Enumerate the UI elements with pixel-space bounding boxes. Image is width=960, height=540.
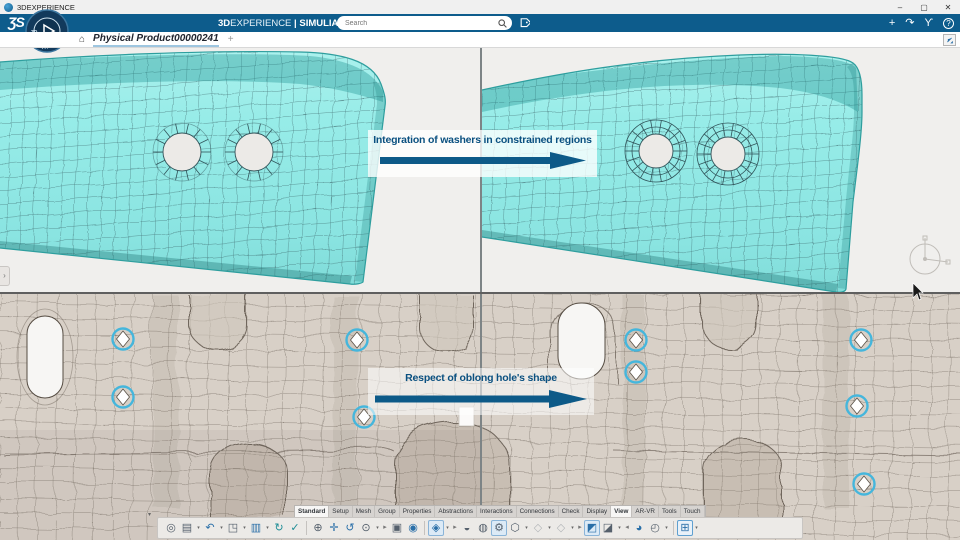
- zoom-in-out-icon[interactable]: ⊕: [310, 520, 326, 536]
- brand-experience: EXPERIENCE: [230, 18, 291, 29]
- zoom-area-icon[interactable]: ◎: [163, 520, 179, 536]
- select-mode-icon[interactable]: ◩: [584, 520, 600, 536]
- ground-context-icon[interactable]: ◍: [475, 520, 491, 536]
- hole-left-1: [163, 133, 201, 171]
- hole-left-2: [235, 133, 273, 171]
- model-viewport[interactable]: [0, 0, 960, 540]
- undo-icon[interactable]: ↶: [202, 520, 218, 536]
- annotation-arrow-top: [380, 152, 586, 169]
- turntable-icon[interactable]: ◴: [647, 520, 663, 536]
- previous-view-icon[interactable]: ◂: [623, 520, 631, 536]
- quad-view-icon[interactable]: ⊞: [677, 520, 693, 536]
- tag-icon[interactable]: [518, 17, 530, 29]
- model-browser-caret[interactable]: ▾: [195, 520, 202, 536]
- horizontal-divider[interactable]: [0, 292, 960, 294]
- annotation-washers: Integration of washers in constrained re…: [368, 130, 597, 177]
- manipulators-caret[interactable]: ▾: [241, 520, 248, 536]
- mechanical-features-icon[interactable]: ⚙: [491, 520, 507, 536]
- maximize-button[interactable]: ▢: [912, 3, 936, 12]
- dassault-3ds-logo-icon[interactable]: ƷS: [8, 14, 24, 30]
- help-icon[interactable]: ?: [943, 18, 954, 29]
- app-globe-icon: [4, 3, 13, 12]
- 3ds-community-icon[interactable]: ϒ: [925, 14, 934, 32]
- search-input[interactable]: [337, 20, 498, 27]
- undo-caret[interactable]: ▾: [218, 520, 225, 536]
- display-option-b-icon[interactable]: ◇: [553, 520, 569, 536]
- annotation-washers-text: Integration of washers in constrained re…: [368, 130, 597, 146]
- zoom-options-caret[interactable]: ▾: [374, 520, 381, 536]
- minimize-button[interactable]: –: [888, 3, 912, 12]
- manipulators-icon[interactable]: ◳: [225, 520, 241, 536]
- document-tab-bar: ⌂ Physical Product00000241 +: [0, 32, 960, 48]
- annotation-oblong: Respect of oblong hole's shape: [368, 368, 594, 415]
- annotation-arrow-bottom: [375, 390, 587, 408]
- panel-expander-icon[interactable]: ›: [0, 266, 10, 286]
- new-tab-button[interactable]: +: [228, 34, 234, 45]
- document-tab[interactable]: Physical Product00000241: [93, 33, 219, 47]
- fastener-display-caret[interactable]: ▾: [523, 520, 530, 536]
- display-option-a-caret[interactable]: ▾: [546, 520, 553, 536]
- home-icon[interactable]: ⌂: [79, 34, 85, 45]
- view-flyout-icon[interactable]: ▸: [381, 520, 389, 536]
- brand-3d: 3D: [218, 18, 230, 29]
- hide-show-caret[interactable]: ▾: [616, 520, 623, 536]
- shaded-view-icon[interactable]: ◈: [428, 520, 444, 536]
- search-icon[interactable]: [498, 19, 507, 28]
- update-icon[interactable]: ↻: [271, 520, 287, 536]
- zoom-options-icon[interactable]: ⊙: [358, 520, 374, 536]
- product-simulia: SIMULIA: [299, 18, 338, 29]
- turntable-caret[interactable]: ▾: [663, 520, 670, 536]
- simulation-checks-icon[interactable]: ✓: [287, 520, 303, 536]
- capture-icon[interactable]: ▣: [389, 520, 405, 536]
- display-option-b-caret[interactable]: ▾: [569, 520, 576, 536]
- hide-show-icon[interactable]: ◪: [600, 520, 616, 536]
- app-bar: ƷS 3D V.R 3DEXPERIENCE | SIMULIA Structu…: [0, 14, 960, 32]
- window-titlebar: 3DEXPERIENCE – ▢ ✕: [0, 0, 960, 14]
- pan-icon[interactable]: ✛: [326, 520, 342, 536]
- search-box[interactable]: [337, 16, 512, 30]
- washer-hole-2: [711, 137, 745, 171]
- add-content-icon[interactable]: +: [889, 14, 895, 32]
- window-title: 3DEXPERIENCE: [17, 3, 888, 12]
- toolbar-overflow-chevron-icon[interactable]: ▾: [148, 511, 151, 518]
- fastener-display-icon[interactable]: ⬡: [507, 520, 523, 536]
- center-view-icon[interactable]: ◉: [405, 520, 421, 536]
- model-browser-icon[interactable]: ▤: [179, 520, 195, 536]
- action-bar-icons: ◎ ▤ ▾ ↶ ▾ ◳ ▾ ▥ ▾ ↻ ✓ ⊕ ✛ ↺ ⊙ ▾ ▸ ▣ ◉ ◈ …: [157, 517, 803, 539]
- section-view-icon[interactable]: ◒: [459, 520, 475, 536]
- quad-view-caret[interactable]: ▾: [693, 520, 700, 536]
- close-button[interactable]: ✕: [936, 3, 960, 12]
- work-supports-caret[interactable]: ▾: [264, 520, 271, 536]
- shaded-view-caret[interactable]: ▾: [444, 520, 451, 536]
- resize-viewport-icon[interactable]: [943, 34, 956, 46]
- display-flyout-icon[interactable]: ▸: [576, 520, 584, 536]
- display-option-a-icon[interactable]: ◇: [530, 520, 546, 536]
- rotate-icon[interactable]: ↺: [342, 520, 358, 536]
- share-icon[interactable]: ↷: [905, 14, 914, 32]
- annotation-oblong-text: Respect of oblong hole's shape: [368, 368, 594, 384]
- brand-divider: |: [294, 18, 297, 29]
- visibility-tools-icon[interactable]: ◕: [631, 520, 647, 536]
- vertical-divider[interactable]: [480, 48, 482, 505]
- work-supports-icon[interactable]: ▥: [248, 520, 264, 536]
- render-flyout-icon[interactable]: ▸: [451, 520, 459, 536]
- washer-hole-1: [639, 134, 673, 168]
